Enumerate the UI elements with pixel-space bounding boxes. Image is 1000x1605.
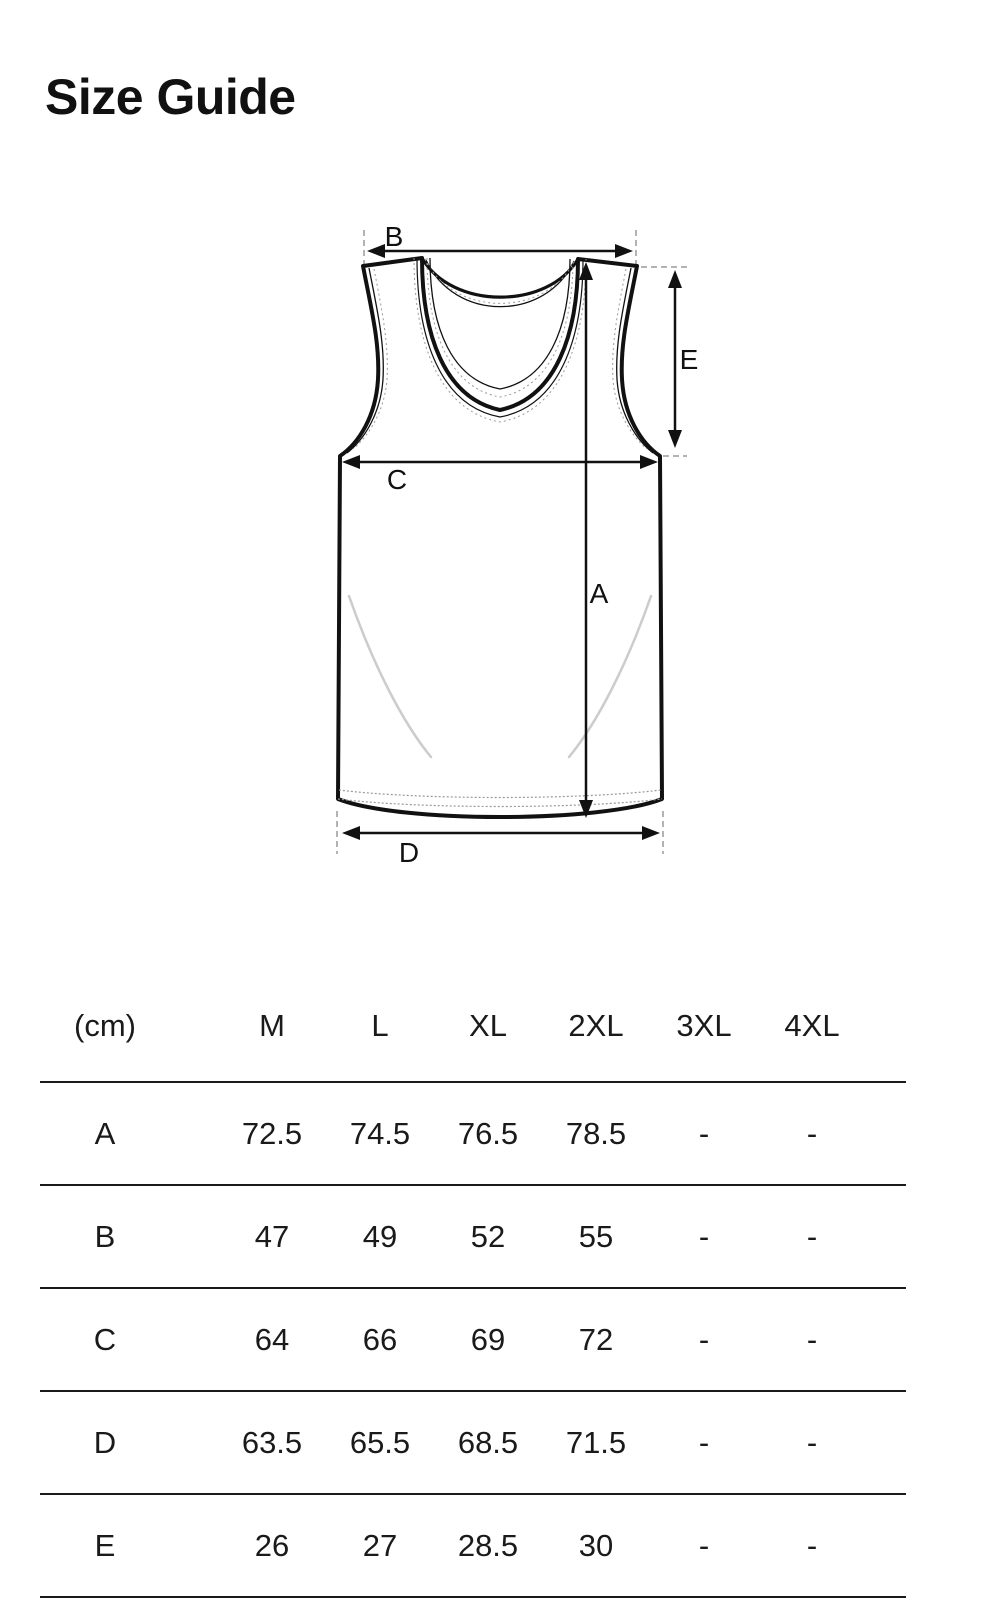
cell-value: 76.5 <box>434 1116 542 1152</box>
tank-top-diagram: B E C A D <box>320 225 705 870</box>
cell-value: - <box>758 1219 866 1255</box>
cell-value: 26 <box>218 1528 326 1564</box>
arrowhead <box>615 244 633 258</box>
diagram-label-b: B <box>385 225 404 252</box>
diagram-label-c: C <box>387 464 407 495</box>
arrowhead <box>642 826 660 840</box>
cell-value: 30 <box>542 1528 650 1564</box>
size-table: (cm) M L XL 2XL 3XL 4XL A 72.5 74.5 76.5… <box>40 970 906 1598</box>
cell-value: 27 <box>326 1528 434 1564</box>
cell-value: - <box>758 1528 866 1564</box>
cell-value: - <box>758 1116 866 1152</box>
row-label: A <box>40 1116 170 1152</box>
measure-arrow-b <box>367 244 633 258</box>
tank-top-outline <box>338 258 662 817</box>
diagram-label-e: E <box>680 344 699 375</box>
cell-value: 78.5 <box>542 1116 650 1152</box>
arrowhead <box>342 826 360 840</box>
size-table-header-row: (cm) M L XL 2XL 3XL 4XL <box>40 970 906 1081</box>
page-title: Size Guide <box>45 72 296 122</box>
back-neckline <box>422 258 578 307</box>
row-label: B <box>40 1219 170 1255</box>
cell-value: 69 <box>434 1322 542 1358</box>
unit-header-cell: (cm) <box>40 1008 170 1044</box>
cell-value: - <box>758 1425 866 1461</box>
size-header-xl: XL <box>434 1008 542 1044</box>
diagram-label-a: A <box>590 578 609 609</box>
cell-value: 74.5 <box>326 1116 434 1152</box>
arrowhead <box>668 270 682 288</box>
row-label: E <box>40 1528 170 1564</box>
cell-value: 28.5 <box>434 1528 542 1564</box>
cell-value: - <box>650 1219 758 1255</box>
cell-value: 66 <box>326 1322 434 1358</box>
table-row-d: D 63.5 65.5 68.5 71.5 - - <box>40 1390 906 1493</box>
cell-value: - <box>650 1528 758 1564</box>
cell-value: 49 <box>326 1219 434 1255</box>
measure-arrow-d <box>342 826 660 840</box>
cell-value: - <box>758 1322 866 1358</box>
table-row-e: E 26 27 28.5 30 - - <box>40 1493 906 1596</box>
size-header-m: M <box>218 1008 326 1044</box>
cell-value: - <box>650 1425 758 1461</box>
cell-value: - <box>650 1322 758 1358</box>
cell-value: 63.5 <box>218 1425 326 1461</box>
cell-value: 65.5 <box>326 1425 434 1461</box>
cell-value: 71.5 <box>542 1425 650 1461</box>
cell-value: 72 <box>542 1322 650 1358</box>
diagram-label-d: D <box>399 837 419 868</box>
size-header-3xl: 3XL <box>650 1008 758 1044</box>
size-header-4xl: 4XL <box>758 1008 866 1044</box>
cell-value: 72.5 <box>218 1116 326 1152</box>
arrowhead <box>668 430 682 448</box>
row-label: C <box>40 1322 170 1358</box>
cell-value: - <box>650 1116 758 1152</box>
row-label: D <box>40 1425 170 1461</box>
back-neck-edge <box>422 258 578 297</box>
table-row-a: A 72.5 74.5 76.5 78.5 - - <box>40 1081 906 1184</box>
cell-value: 64 <box>218 1322 326 1358</box>
size-header-l: L <box>326 1008 434 1044</box>
size-header-2xl: 2XL <box>542 1008 650 1044</box>
cell-value: 52 <box>434 1219 542 1255</box>
neck-band-inner <box>430 258 570 389</box>
cell-value: 68.5 <box>434 1425 542 1461</box>
arrowhead <box>367 244 385 258</box>
cell-value: 47 <box>218 1219 326 1255</box>
cell-value: 55 <box>542 1219 650 1255</box>
table-row-c: C 64 66 69 72 - - <box>40 1287 906 1390</box>
table-row-b: B 47 49 52 55 - - <box>40 1184 906 1287</box>
